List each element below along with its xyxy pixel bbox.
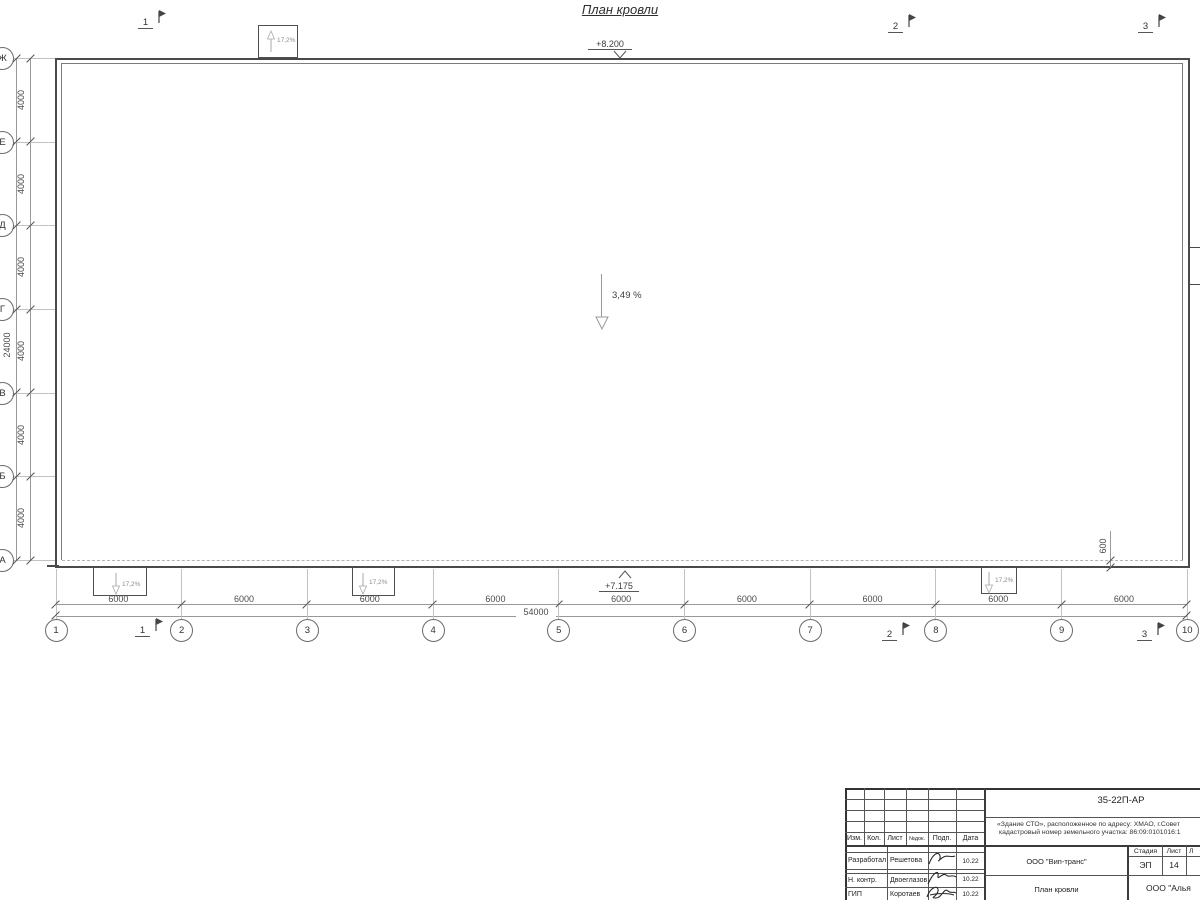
grid-axis-circle: 7 [799, 619, 822, 642]
section-mark: 1 [138, 12, 172, 28]
tb-line [985, 817, 1200, 818]
tb-sheet-header: Лист [1162, 847, 1186, 856]
tb-company: ООО "Вип-транс" [985, 857, 1128, 866]
axis-extension-line [810, 569, 811, 619]
tb-line [985, 875, 1200, 876]
section-mark: 3 [1138, 16, 1172, 32]
section-mark: 3 [1137, 624, 1171, 640]
tb-date: 10.22 [956, 875, 985, 884]
axis-extension-line [12, 560, 55, 561]
tb-role: Н. контр. [848, 876, 877, 885]
tb-sheet-title: План кровли [985, 885, 1128, 894]
tb-sheet-value: 14 [1162, 861, 1186, 870]
tb-rev-izm: Изм. [845, 834, 864, 843]
bay-dim-label: 4000 [16, 247, 26, 287]
axis-extension-line [307, 569, 308, 619]
tb-partner: ООО "Алья [1146, 884, 1191, 893]
section-mark-label: 2 [888, 21, 903, 33]
tb-line [845, 887, 984, 888]
grid-axis-circle: Е [0, 131, 14, 154]
section-mark-label: 1 [135, 625, 150, 637]
total-dim-label: 24000 [2, 325, 12, 365]
section-mark-label: 3 [1138, 21, 1153, 33]
grid-axis-circle: 4 [422, 619, 445, 642]
tb-line [845, 869, 984, 870]
axis-extension-line [558, 569, 559, 619]
tb-line [845, 832, 984, 833]
tb-rev-ndok: №док. [906, 835, 928, 844]
signature-icon [924, 883, 958, 900]
axis-extension-line [56, 569, 57, 619]
tb-line [1186, 845, 1187, 875]
grid-axis-circle: Г [0, 298, 14, 321]
tb-doc-number: 35-22П-АР [985, 796, 1200, 805]
section-mark-label: 1 [138, 17, 153, 29]
tb-line [845, 799, 984, 800]
section-arrow-icon [155, 9, 167, 24]
axis-extension-line [935, 569, 936, 619]
grid-axis-circle: 9 [1050, 619, 1073, 642]
tb-name: Двоеглазов [890, 876, 927, 885]
bay-dim-label: 4000 [16, 415, 26, 455]
section-mark: 2 [888, 16, 922, 32]
grid-axis-circle: 8 [924, 619, 947, 642]
axis-extension-line [433, 569, 434, 619]
tb-role: ГИП [848, 890, 862, 899]
axis-extension-line [12, 476, 55, 477]
grid-axis-circle: В [0, 382, 14, 405]
grid-axis-circle: 10 [1176, 619, 1199, 642]
tb-date: 10.22 [956, 890, 985, 899]
bay-dim-label: 4000 [16, 498, 26, 538]
grid-axis-circle: 3 [296, 619, 319, 642]
section-mark-label: 2 [882, 629, 897, 641]
signature-icon [927, 849, 957, 868]
tb-line [845, 821, 984, 822]
tb-date: 10.22 [956, 857, 985, 866]
bay-dim-label: 4000 [16, 164, 26, 204]
roof-plan-sheet: План кровли +8.200 +7.175 3,49 % 600 17,… [0, 0, 1200, 900]
dim-line-bays [56, 604, 1187, 605]
section-mark: 1 [135, 620, 169, 636]
bay-dim-label: 6000 [470, 594, 520, 604]
bay-dim-label: 6000 [345, 594, 395, 604]
tb-rev-podp: Подп. [928, 834, 956, 843]
grid-axis-circle: А [0, 549, 14, 572]
section-mark: 2 [882, 624, 916, 640]
axis-extension-line [1187, 569, 1188, 619]
bay-dim-label: 6000 [219, 594, 269, 604]
tb-line [845, 873, 984, 874]
axis-extension-line [12, 58, 55, 59]
tb-role: Разработал [848, 856, 886, 865]
tb-rev-kol: Кол. [864, 834, 884, 843]
bay-dim-label: 6000 [722, 594, 772, 604]
bay-dim-label: 6000 [1099, 594, 1149, 604]
section-mark-label: 3 [1137, 629, 1152, 641]
grid-axis-circle: Б [0, 465, 14, 488]
bay-dim-label: 4000 [16, 331, 26, 371]
grid-axis-circle: 2 [170, 619, 193, 642]
bay-dim-label: 6000 [973, 594, 1023, 604]
tb-rev-data: Дата [956, 834, 985, 843]
grid-axis-circle: Ж [0, 47, 14, 70]
grid-axis-circle: 6 [673, 619, 696, 642]
axis-extension-line [181, 569, 182, 619]
grid-axis-circle: Д [0, 214, 14, 237]
grid-axis-circle: 5 [547, 619, 570, 642]
tb-line [845, 810, 984, 811]
axis-extension-line [1061, 569, 1062, 619]
tb-line [845, 852, 984, 853]
axis-extension-line [12, 225, 55, 226]
bay-dim-label: 6000 [93, 594, 143, 604]
tb-rev-list: Лист [884, 834, 906, 843]
axis-extension-line [12, 309, 55, 310]
section-arrow-icon [899, 621, 911, 636]
tb-name: Решетова [890, 856, 922, 865]
axis-extension-line [684, 569, 685, 619]
section-arrow-icon [152, 617, 164, 632]
section-arrow-icon [1155, 13, 1167, 28]
grid-layer: 1260003600046000560006600076000860009600… [0, 0, 1200, 900]
tb-sheets-header: Л [1189, 847, 1193, 856]
bay-dim-label: 6000 [848, 594, 898, 604]
tb-line [1129, 856, 1200, 857]
dim-line-total [56, 616, 1187, 617]
total-dim-label: 54000 [516, 607, 556, 617]
grid-axis-circle: 1 [45, 619, 68, 642]
tb-stage-header: Стадия [1129, 847, 1162, 856]
bay-dim-label: 6000 [596, 594, 646, 604]
axis-extension-line [12, 393, 55, 394]
section-arrow-icon [905, 13, 917, 28]
bay-dim-label: 4000 [16, 80, 26, 120]
section-arrow-icon [1154, 621, 1166, 636]
tb-project-line2: кадастровый номер земельного участка: 86… [999, 828, 1181, 837]
tb-name: Коротаев [890, 890, 920, 899]
axis-extension-line [12, 142, 55, 143]
tb-stage-value: ЭП [1129, 861, 1162, 870]
